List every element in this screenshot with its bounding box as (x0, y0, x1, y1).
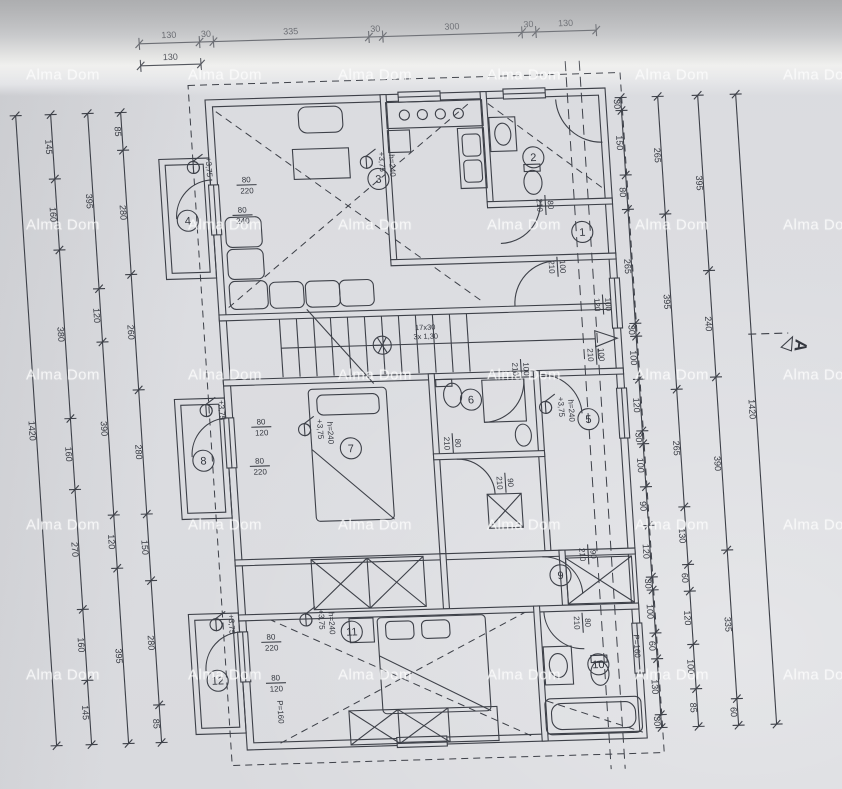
dim-value: 85 (688, 703, 699, 713)
sink-basin-icon (463, 160, 482, 183)
dim-value: 30 (643, 578, 654, 588)
section-dash (748, 333, 788, 334)
opening-size-text: 210 (494, 476, 504, 490)
dim-value: 1420 (746, 399, 757, 419)
blueprint-photo: 1420145160380160270160145395120390120395… (0, 0, 842, 789)
stove-burner-icon (399, 110, 410, 120)
opening-size-label: 80220 (249, 456, 270, 477)
dim-value: 60 (680, 573, 691, 583)
level-value: +3,75 (226, 614, 236, 635)
opening-size-text: 80 (256, 417, 266, 426)
level-marker-icon (545, 401, 552, 413)
shower-icon (482, 379, 527, 422)
opening-size-text: 210 (547, 260, 557, 274)
opening-size-label: 100210 (546, 256, 567, 277)
opening-size-text: 210 (572, 616, 582, 630)
opening-size-label: 80210 (534, 195, 555, 216)
stove-burner-icon (435, 109, 446, 119)
level-value: +3,75 (377, 152, 387, 173)
level-marker-icon (193, 161, 200, 173)
opening-size-label: 80210 (442, 433, 463, 454)
dim-value: 130 (677, 528, 688, 543)
dim-value: 265 (622, 259, 633, 274)
opening-size-text: 100 (603, 298, 613, 312)
dim-value: 100 (635, 458, 646, 473)
pillow-icon (316, 393, 379, 415)
opening-size-text (261, 642, 281, 643)
opening-size-label: 80220 (236, 175, 257, 196)
opening-size-text (582, 613, 583, 633)
dim-value: 390 (712, 456, 723, 471)
opening-size-text: 90 (588, 550, 598, 560)
room-number: 9 (557, 570, 564, 582)
dim-value: 395 (84, 194, 95, 209)
opening-size-label: 80210 (571, 612, 592, 633)
opening-size-text: 80 (266, 632, 276, 641)
dim-value: 30 (652, 716, 663, 726)
opening-size-text: 100 (596, 348, 606, 362)
room-number: 2 (530, 152, 537, 164)
room-number: 10 (592, 659, 605, 671)
opening-size-text: 210 (510, 362, 520, 376)
opening-size-text: 120 (269, 684, 283, 693)
level-value: +3,75 (204, 157, 214, 178)
dim-value: 100 (628, 350, 639, 365)
dim-value: 85 (113, 126, 124, 136)
dim-value: 130 (649, 679, 660, 694)
opening-size-text (545, 195, 546, 215)
dim-value: 100 (645, 604, 656, 619)
level-value: +3,75 (316, 609, 326, 630)
dim-value: 1420 (26, 421, 37, 441)
dim-chain-line (141, 64, 201, 66)
stove-burner-icon (453, 108, 464, 118)
dim-value: 120 (682, 610, 693, 625)
room-number: 8 (200, 455, 207, 467)
stair-label: 3x 1,30 (413, 331, 438, 341)
opening-size-text: 80 (242, 175, 252, 184)
level-value: +3,75 (315, 419, 325, 440)
dim-value: 80 (617, 187, 628, 197)
stove-burner-icon (417, 109, 428, 119)
dim-value: 130 (161, 30, 177, 40)
opening-size-text (266, 683, 286, 684)
opening-size-text: 80 (453, 439, 463, 449)
dim-value: 85 (151, 719, 162, 729)
room-number: 12 (211, 675, 224, 687)
dim-value: 160 (48, 207, 59, 222)
opening-size-label: 80220 (261, 632, 282, 653)
dim-value: 30 (612, 99, 623, 109)
opening-size-text: 120 (255, 428, 269, 437)
opening-size-label: 90210 (494, 472, 515, 493)
opening-size-label: 100120 (592, 294, 613, 315)
level-marker-flag (366, 149, 376, 156)
washbasin-icon (494, 123, 511, 145)
dim-value: 130 (558, 18, 574, 28)
opening-size-text: 100 (558, 260, 568, 274)
dim-value: 120 (91, 308, 102, 323)
dim-value: 380 (55, 327, 66, 342)
opening-size-text: 210 (442, 437, 452, 451)
opening-size-text: 100 (521, 362, 531, 376)
ceiling-height-value: h=240 (325, 422, 335, 445)
dim-value: 120 (106, 534, 117, 549)
room-number: 4 (184, 215, 191, 227)
dim-value: 270 (69, 542, 80, 557)
level-marker-flag (545, 394, 555, 401)
opening-size-text: 220 (240, 186, 254, 195)
level-marker-icon (366, 156, 373, 168)
dim-value: 30 (633, 432, 644, 442)
opening-size-text (251, 427, 271, 428)
toilet-icon (523, 170, 543, 195)
dim-value: 300 (444, 21, 460, 31)
sink-basin-icon (462, 134, 481, 157)
washbasin-icon (549, 653, 569, 678)
ceiling-height-value: h=240 (566, 399, 576, 422)
opening-size-text: 220 (253, 467, 267, 476)
dim-value: 280 (118, 205, 129, 220)
dim-value: 30 (370, 24, 381, 34)
level-value: +3,75 (556, 397, 566, 418)
bedroom11-furniture (343, 614, 499, 744)
dim-value: 265 (671, 441, 682, 456)
opening-size-text (233, 215, 253, 216)
level-marker-flag (215, 611, 225, 618)
parapet-label: P=160 (275, 700, 286, 724)
opening-size-label: 80240 (232, 205, 253, 226)
opening-size-text: 80 (237, 205, 247, 214)
room-number: 11 (346, 626, 358, 638)
dim-value: 395 (113, 648, 124, 663)
opening-size-text: 80 (271, 673, 281, 682)
dim-value: 260 (125, 325, 136, 340)
opening-size-text: 210 (585, 348, 595, 362)
room-number: 7 (347, 443, 354, 455)
dim-value: 90 (638, 501, 649, 511)
opening-size-label: 100210 (585, 344, 606, 365)
shower-icon (556, 98, 603, 143)
opening-size-text: 120 (592, 298, 602, 312)
dim-value: 265 (652, 148, 663, 163)
dim-value: 395 (694, 175, 705, 190)
dim-value: 395 (662, 294, 673, 309)
opening-size-text (505, 473, 506, 493)
dim-value: 60 (728, 707, 739, 717)
room-number: 6 (468, 394, 475, 406)
dim-value: 130 (162, 52, 178, 62)
opening-size-text (452, 433, 453, 453)
dim-chain-line (658, 96, 699, 726)
room-number: 1 (579, 227, 586, 239)
washbasin-icon (515, 424, 532, 446)
opening-size-label: 80120 (265, 673, 286, 694)
level-marker-flag (304, 416, 314, 423)
opening-size-text: 80 (546, 200, 556, 210)
dim-value: 145 (80, 705, 91, 720)
opening-size-text: 240 (236, 216, 250, 225)
dim-value: 390 (99, 421, 110, 436)
dim-value: 280 (133, 444, 144, 459)
opening-size-text: 220 (265, 643, 279, 652)
opening-size-text: 210 (535, 198, 545, 212)
dim-value: 160 (63, 447, 74, 462)
opening-size-label: 90210 (577, 544, 598, 565)
pillow-icon (421, 620, 450, 639)
dim-value: 120 (631, 397, 642, 412)
dim-value: 280 (146, 635, 157, 650)
parapet-label: P=160 (632, 634, 643, 658)
kitchen-fixtures (386, 100, 488, 191)
floor-plan-drawing: 1420145160380160270160145395120390120395… (0, 0, 842, 789)
opening-size-text (250, 466, 270, 467)
bathroom2-fixtures (488, 98, 609, 243)
opening-size-text: 80 (583, 618, 593, 628)
dim-value: 160 (76, 637, 87, 652)
dim-value: 335 (723, 617, 734, 632)
dim-value: 30 (523, 19, 534, 29)
toilet-icon (443, 383, 463, 408)
room-number: 3 (375, 174, 382, 186)
dim-value: 145 (43, 139, 54, 154)
section-label: A (790, 338, 810, 353)
ceiling-height-value: h=240 (326, 612, 336, 635)
dim-value: 120 (641, 544, 652, 559)
dim-value: 60 (647, 641, 658, 651)
opening-size-text (588, 544, 589, 564)
dim-value: 150 (139, 540, 150, 555)
level-marker-icon (216, 619, 223, 631)
pillow-icon (385, 621, 414, 640)
dim-value: 30 (626, 325, 637, 335)
dim-value: 30 (201, 29, 212, 39)
dim-value: 100 (685, 659, 696, 674)
dim-value: 150 (614, 135, 625, 150)
dim-value: 240 (703, 316, 714, 331)
door-swing-arc (457, 458, 495, 495)
room-number: 5 (585, 414, 592, 426)
opening-size-text (237, 185, 257, 186)
opening-size-text: 210 (577, 548, 587, 562)
opening-size-text: 80 (255, 456, 265, 465)
opening-size-label: 80120 (251, 417, 272, 438)
opening-size-text: 90 (506, 478, 516, 488)
dim-value: 335 (283, 26, 299, 36)
ceiling-height-value: h=240 (387, 154, 397, 177)
level-value: +3,75 (216, 400, 226, 421)
